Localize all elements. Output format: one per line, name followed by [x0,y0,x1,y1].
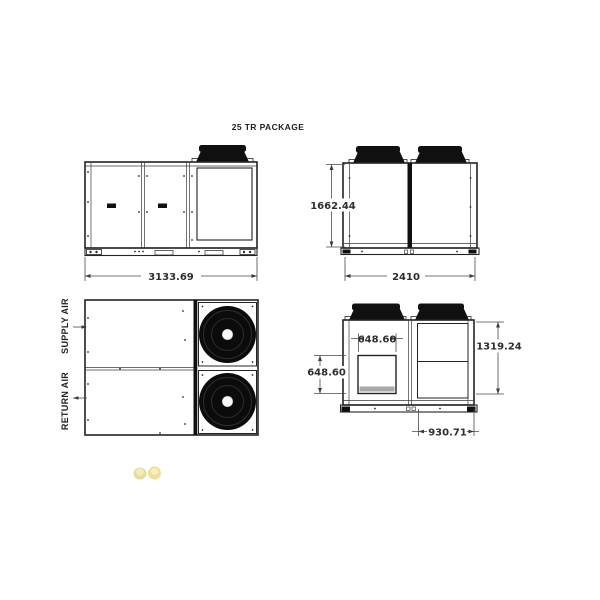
base-rail [341,405,478,412]
dimension-overall-height: 1662.44 [310,165,356,248]
fan-cowl [345,304,406,321]
fan-cowl [349,146,407,163]
fan-cowl [192,145,253,162]
dimension-text-opening-height: 648.60 [307,368,346,379]
dimension-text-overall-length: 3133.69 [148,272,194,283]
dimension-text-condenser-width: 930.71 [428,428,467,439]
base-rail [341,248,479,255]
drawing-canvas: 25 TR PACKAGE [0,0,600,600]
supply-air-label: SUPPLY AIR [60,298,70,354]
condenser-fan [199,373,256,430]
fan-hub [222,329,233,340]
condenser-fan [199,306,256,363]
drawing-title: 25 TR PACKAGE [232,122,305,132]
dimension-overall-length: 3133.69 [85,257,257,283]
condenser-coil-panel [197,168,252,240]
dimension-opening-height: 648.60 [307,356,346,394]
fan-cowl [411,146,469,163]
screw-dots [87,171,193,241]
watermark-logo [134,467,162,480]
dimension-text-unit-height: 1319.24 [476,342,522,353]
drawing-page: 25 TR PACKAGE [0,0,600,600]
section-divider [194,300,198,435]
duct-opening [358,356,396,394]
dimension-text-overall-height: 1662.44 [310,201,356,212]
fan-cowl [411,304,471,321]
dimension-opening-width: 648.60 [351,332,403,352]
vent-strip [360,387,395,392]
fan-hub [222,396,233,407]
view-end-elevation: 1662.44 2410 [310,146,479,283]
base-rail [85,248,257,256]
dimension-text-opening-width: 648.60 [358,335,397,346]
panel-label-plate [107,204,116,209]
dimension-text-overall-width: 2410 [392,272,420,283]
dimension-condenser-width: 930.71 [412,409,479,439]
condenser-section-panel [418,324,469,399]
view-section-elevation: 648.60 648.60 1319.24 [307,304,522,439]
return-air-label: RETURN AIR [60,372,70,430]
panel-label-plate [158,204,167,209]
dimension-overall-width: 2410 [345,257,475,283]
dimension-unit-height: 1319.24 [476,322,522,394]
center-divider [408,163,413,248]
view-plan: SUPPLY AIR RETURN AIR [60,298,258,435]
view-side-elevation: 3133.69 [85,145,257,283]
